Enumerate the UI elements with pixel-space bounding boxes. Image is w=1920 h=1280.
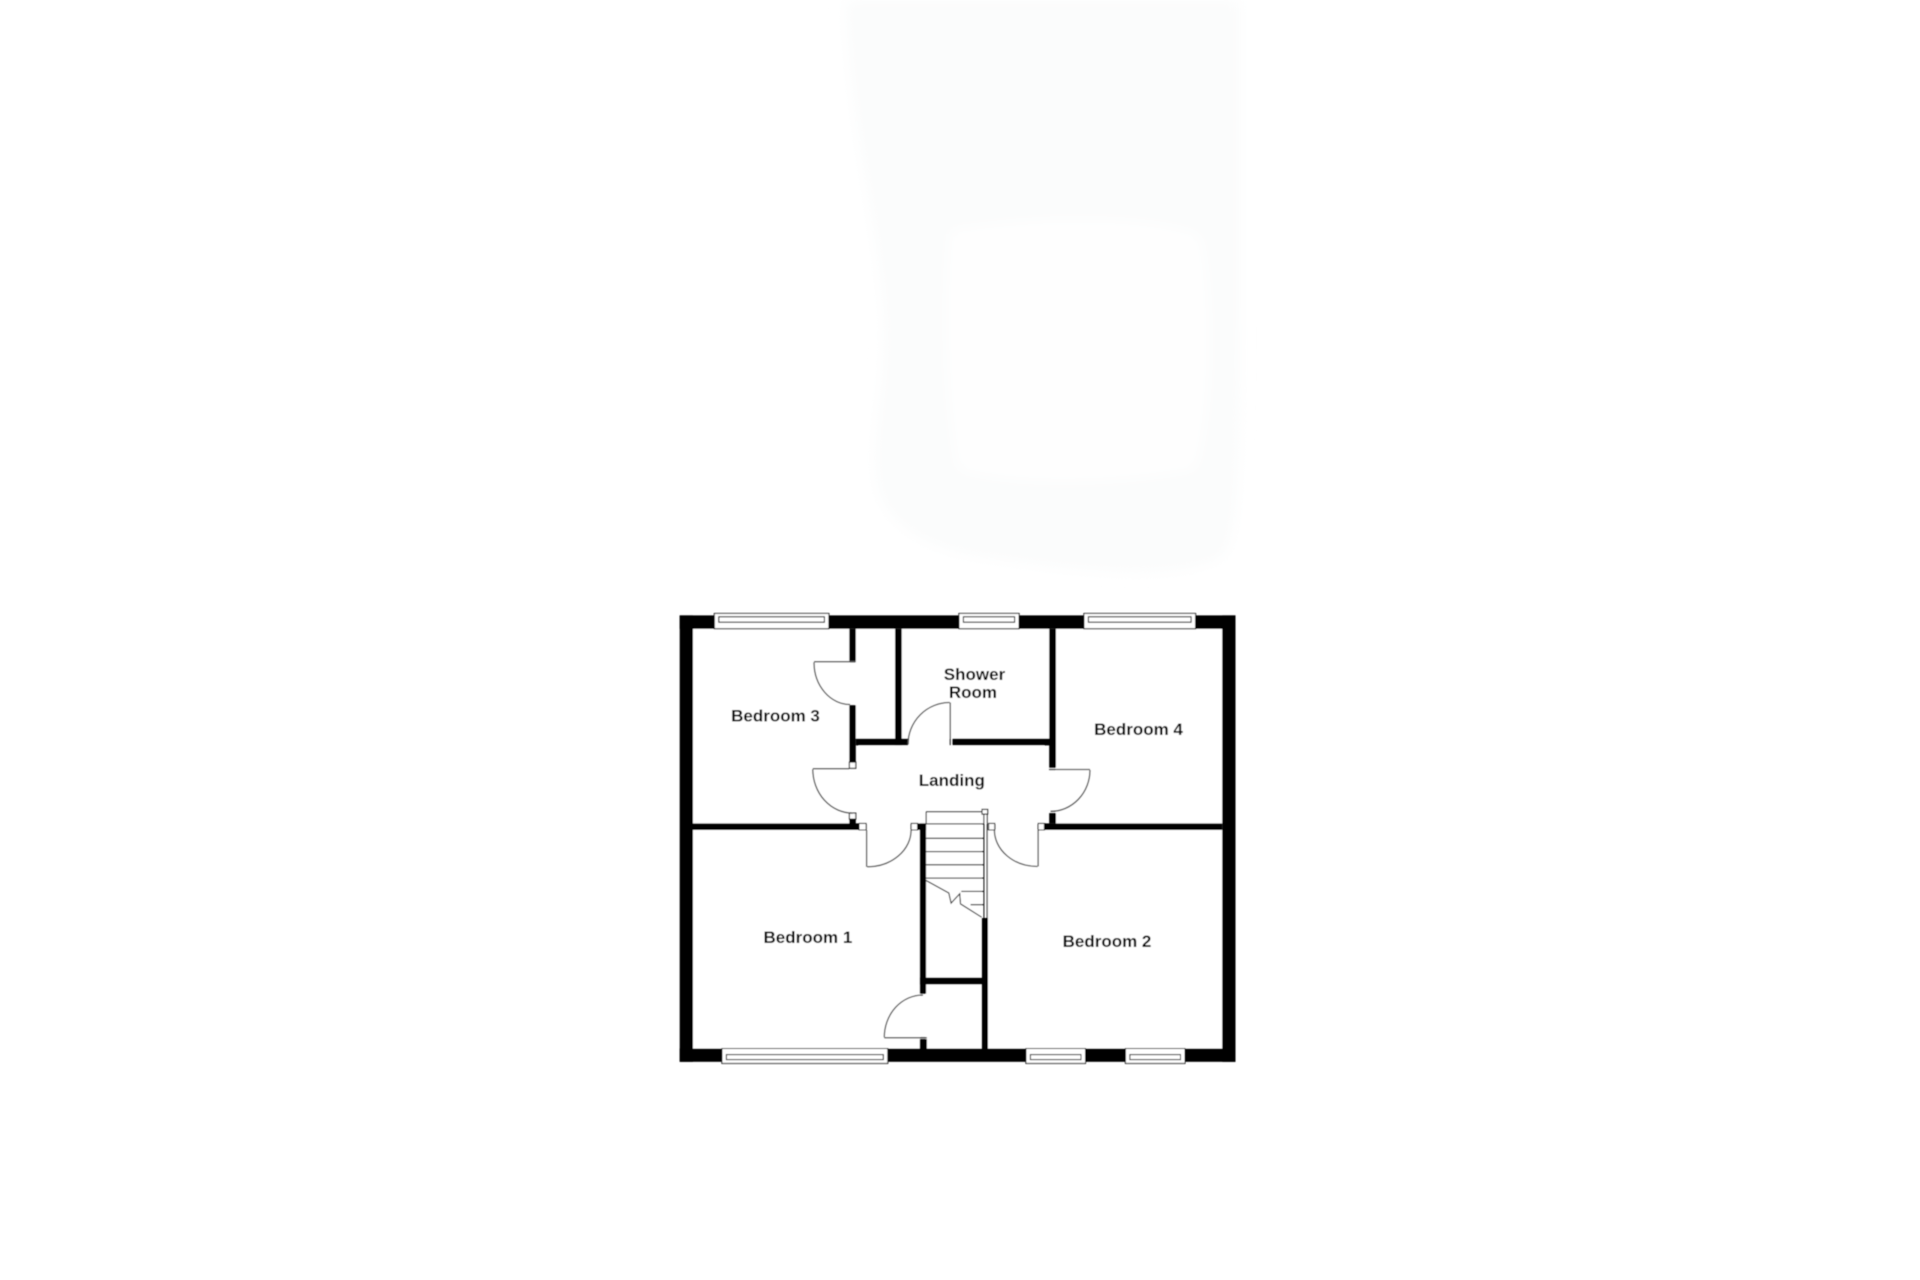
svg-text:Bedroom 4: Bedroom 4	[1094, 720, 1183, 739]
svg-text:Landing: Landing	[919, 771, 985, 790]
svg-text:Bedroom 2: Bedroom 2	[1063, 932, 1152, 951]
svg-text:Room: Room	[949, 683, 997, 702]
svg-text:Shower: Shower	[944, 665, 1006, 684]
svg-text:Bedroom 3: Bedroom 3	[731, 707, 820, 726]
svg-text:Bedroom 1: Bedroom 1	[764, 928, 853, 947]
